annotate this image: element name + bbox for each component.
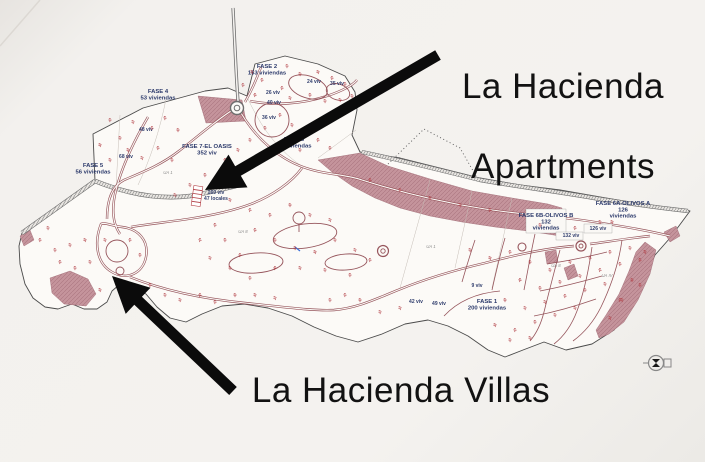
scanned-site-plan: FASE 453 viviendasFASE 2153 viviendasFAS… bbox=[0, 0, 705, 462]
apartments-title: La Hacienda Apartments bbox=[430, 27, 696, 226]
unit-count-label: 47 locales bbox=[204, 196, 228, 202]
paper-crease bbox=[0, 0, 40, 46]
area-label: UA 1 bbox=[163, 170, 173, 175]
unit-count-label: 42 viv bbox=[409, 299, 423, 305]
area-label: UA IV bbox=[601, 273, 613, 278]
unit-count-label: 26 viv bbox=[266, 90, 280, 96]
unit-count-label: 132 viv bbox=[563, 233, 580, 239]
unit-count-label: 40 viv bbox=[267, 100, 281, 106]
phase-label: FASE 453 viviendas bbox=[140, 89, 176, 101]
unit-count-label: 68 viv bbox=[119, 154, 133, 160]
unit-count-label: 35 viv bbox=[330, 81, 344, 87]
villas-title: La Hacienda Villas bbox=[240, 371, 562, 411]
area-label: UA 8 bbox=[238, 229, 248, 234]
area-label: UA 8 bbox=[551, 263, 561, 268]
apartments-title-line2: Apartments bbox=[430, 147, 696, 187]
north-marker-icon bbox=[643, 356, 671, 371]
plot-marker bbox=[241, 83, 245, 87]
unit-count-label: 24 viv bbox=[307, 79, 321, 85]
area-label: UA 1 bbox=[426, 244, 436, 249]
plot-marker bbox=[108, 118, 111, 122]
apartments-title-line1: La Hacienda bbox=[430, 67, 696, 107]
unit-count-label: 49 viv bbox=[432, 301, 446, 307]
unit-count-label: 36 viv bbox=[262, 115, 276, 121]
unit-count-label: 9 viv bbox=[471, 283, 482, 289]
unit-count-label: 126 viv bbox=[590, 226, 607, 232]
